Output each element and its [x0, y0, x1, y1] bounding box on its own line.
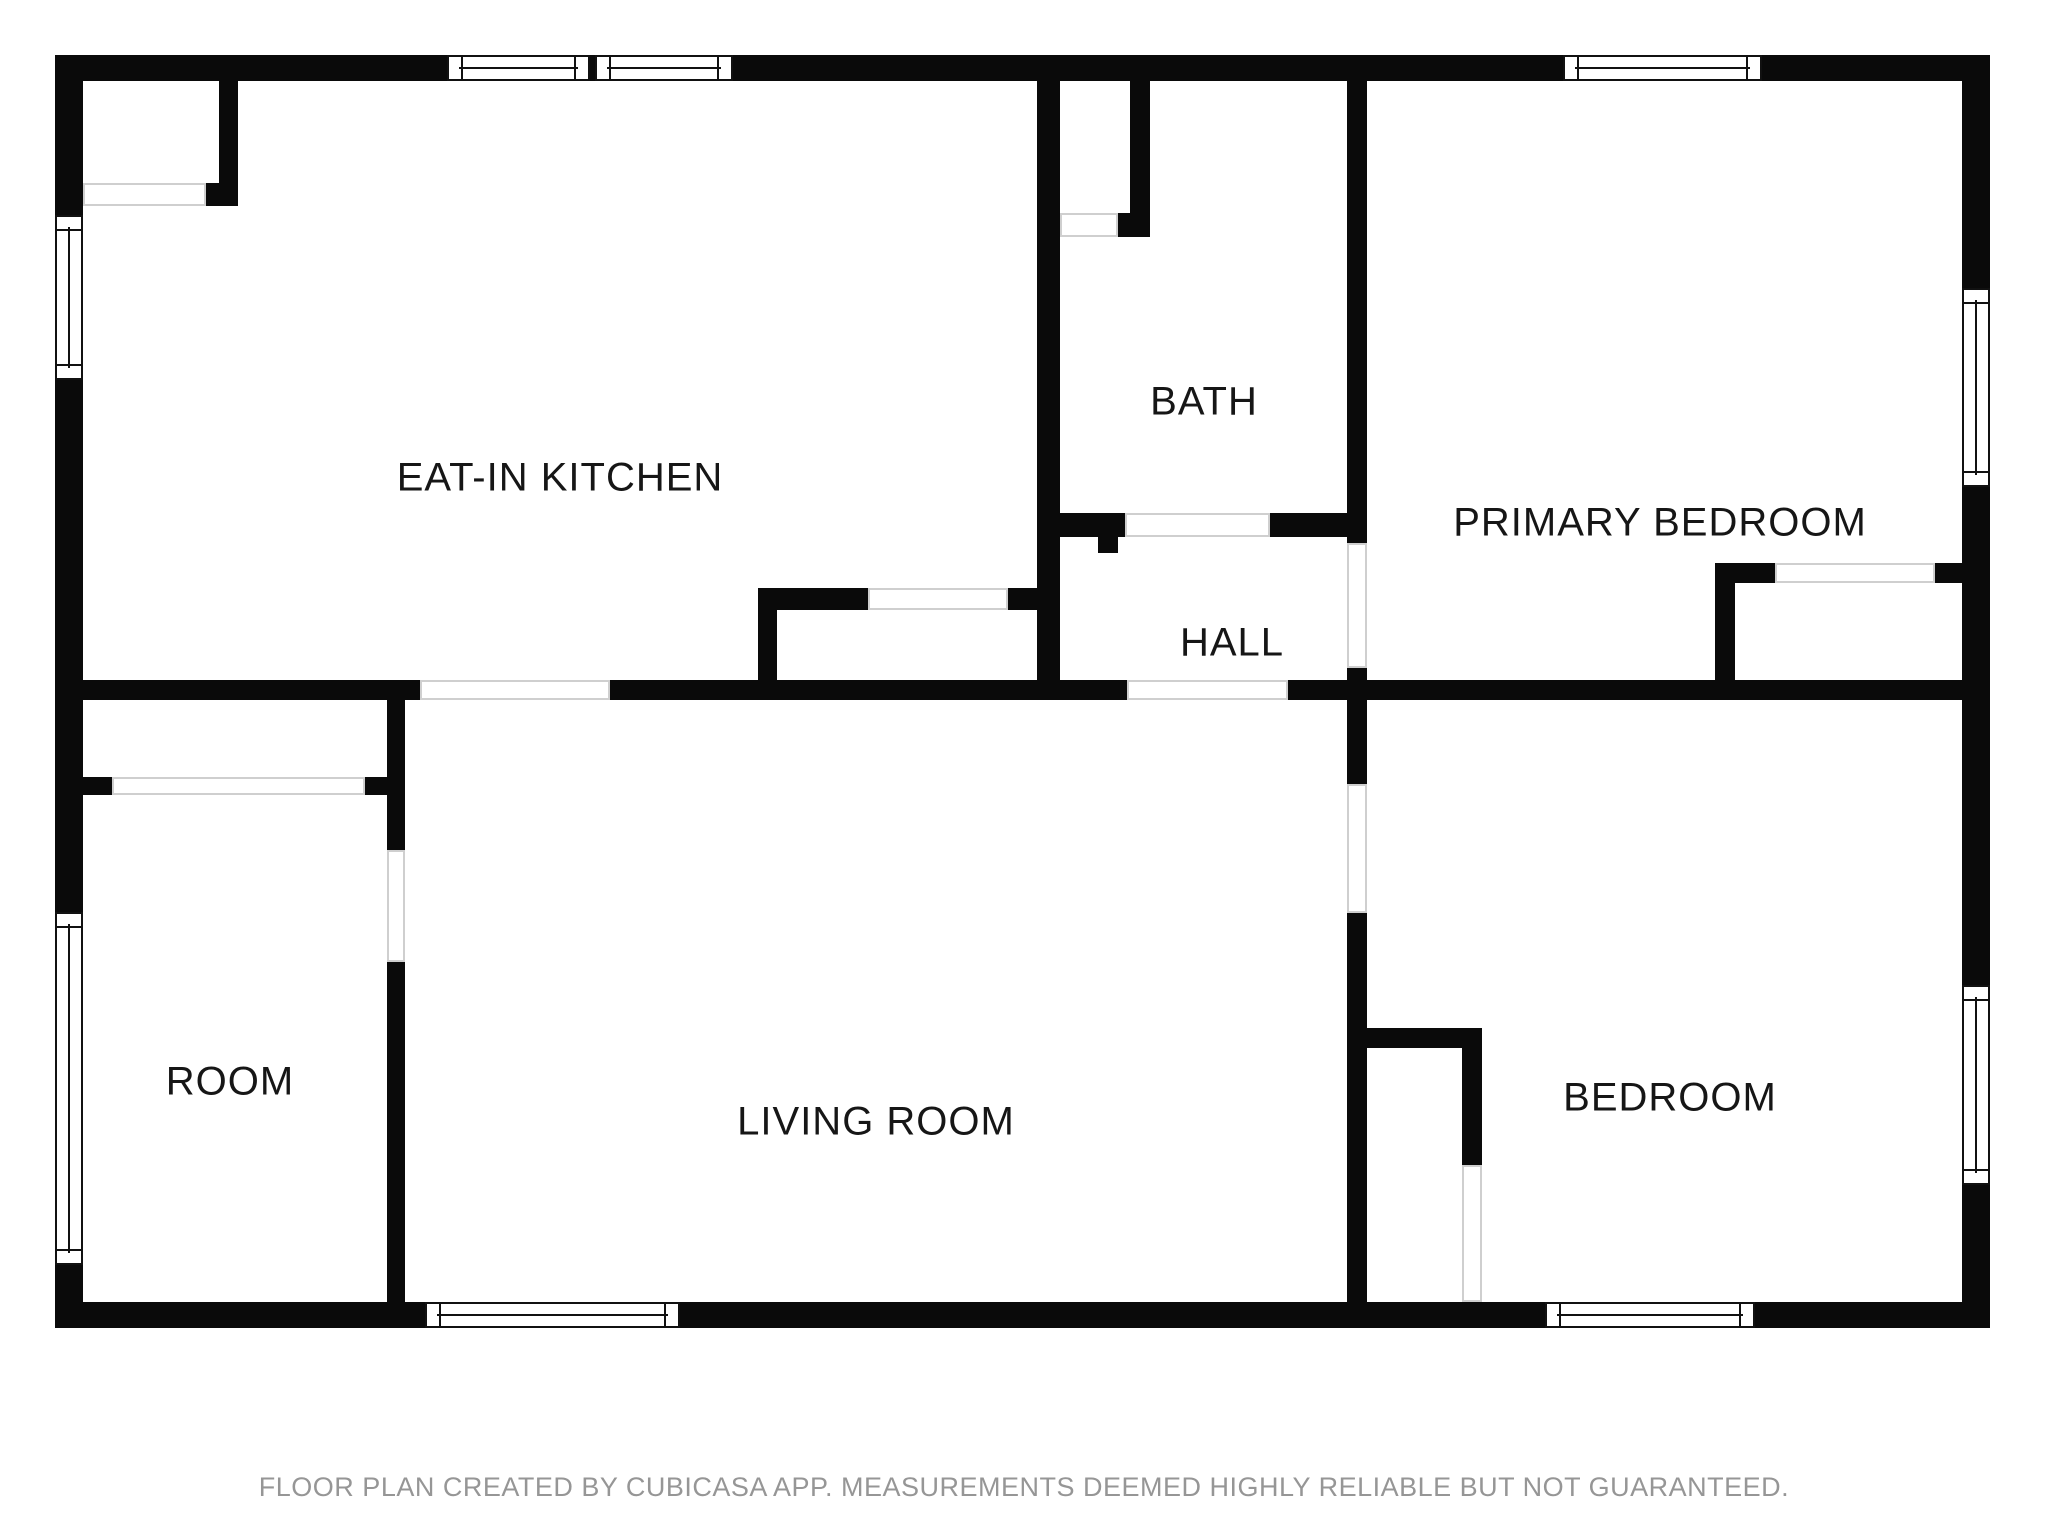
wall-segment	[1098, 537, 1118, 553]
window-frame-line	[1964, 471, 1988, 473]
wall-segment	[1367, 680, 1962, 700]
window-frame-line	[461, 57, 463, 79]
window-symbol	[1962, 985, 1990, 1185]
wall-segment	[1347, 913, 1367, 1328]
window-glass-line	[607, 67, 721, 69]
window-symbol	[55, 215, 83, 380]
window-frame-line	[1559, 1304, 1561, 1326]
door-opening	[1775, 563, 1935, 583]
wall-segment	[55, 680, 420, 700]
window-glass-line	[1975, 300, 1977, 475]
window-frame-line	[1964, 302, 1988, 304]
window-symbol	[55, 912, 83, 1265]
door-opening	[1125, 513, 1270, 537]
room-label-bedroom: BEDROOM	[1563, 1076, 1777, 1121]
window-frame-line	[1964, 999, 1988, 1001]
door-opening	[1462, 1165, 1482, 1302]
window-frame-line	[1746, 57, 1748, 79]
floor-plan: EAT-IN KITCHENBATHPRIMARY BEDROOMHALLROO…	[0, 0, 2048, 1536]
window-frame-line	[574, 57, 576, 79]
window-frame-line	[664, 1304, 666, 1326]
room-label-eat-in-kitchen: EAT-IN KITCHEN	[397, 456, 724, 501]
window-frame-line	[439, 1304, 441, 1326]
window-frame-line	[1964, 1169, 1988, 1171]
window-frame-line	[57, 364, 81, 366]
wall-segment	[1935, 563, 1962, 583]
door-opening	[112, 777, 365, 795]
wall-segment	[83, 777, 112, 795]
window-frame-line	[717, 57, 719, 79]
wall-segment	[758, 588, 868, 610]
wall-segment	[1130, 81, 1150, 213]
wall-segment	[758, 610, 777, 680]
door-opening	[387, 850, 405, 962]
door-opening	[420, 680, 610, 700]
wall-segment	[610, 680, 1127, 700]
wall-segment	[1347, 668, 1367, 784]
window-glass-line	[1557, 1314, 1743, 1316]
door-opening	[1060, 213, 1118, 237]
wall-segment	[1715, 583, 1735, 700]
window-frame-line	[609, 57, 611, 79]
wall-segment	[219, 81, 238, 183]
wall-segment	[1367, 1028, 1482, 1048]
window-symbol	[447, 55, 590, 81]
window-frame-line	[1577, 57, 1579, 79]
room-label-bath: BATH	[1150, 380, 1258, 425]
window-glass-line	[1575, 67, 1750, 69]
wall-segment	[387, 700, 405, 850]
door-opening	[1347, 784, 1367, 913]
room-label-room: ROOM	[166, 1060, 294, 1105]
window-frame-line	[1739, 1304, 1741, 1326]
wall-segment	[387, 962, 405, 1302]
window-glass-line	[68, 924, 70, 1253]
window-glass-line	[1975, 997, 1977, 1173]
window-symbol	[1545, 1302, 1755, 1328]
wall-segment	[1462, 1048, 1482, 1165]
window-symbol	[1962, 288, 1990, 487]
wall-segment	[1008, 588, 1040, 610]
window-frame-line	[57, 1249, 81, 1251]
wall-segment	[1347, 81, 1367, 543]
window-frame-line	[57, 229, 81, 231]
wall-segment	[1715, 563, 1775, 583]
window-symbol	[1563, 55, 1762, 81]
door-opening	[83, 183, 206, 206]
wall-segment	[1037, 81, 1060, 680]
window-symbol	[425, 1302, 680, 1328]
room-label-primary-bedroom: PRIMARY BEDROOM	[1453, 501, 1867, 546]
door-opening	[1347, 543, 1367, 668]
room-label-living-room: LIVING ROOM	[737, 1100, 1015, 1145]
door-opening	[868, 588, 1008, 610]
window-symbol	[595, 55, 733, 81]
wall-segment	[365, 777, 387, 795]
wall-segment	[1058, 513, 1125, 537]
window-glass-line	[68, 227, 70, 368]
window-glass-line	[437, 1314, 668, 1316]
door-opening	[1127, 680, 1288, 700]
wall-segment	[204, 183, 238, 206]
room-label-hall: HALL	[1180, 621, 1284, 666]
window-glass-line	[459, 67, 578, 69]
window-frame-line	[57, 926, 81, 928]
wall-segment	[1118, 213, 1150, 237]
footer-disclaimer: FLOOR PLAN CREATED BY CUBICASA APP. MEAS…	[0, 1472, 2048, 1503]
